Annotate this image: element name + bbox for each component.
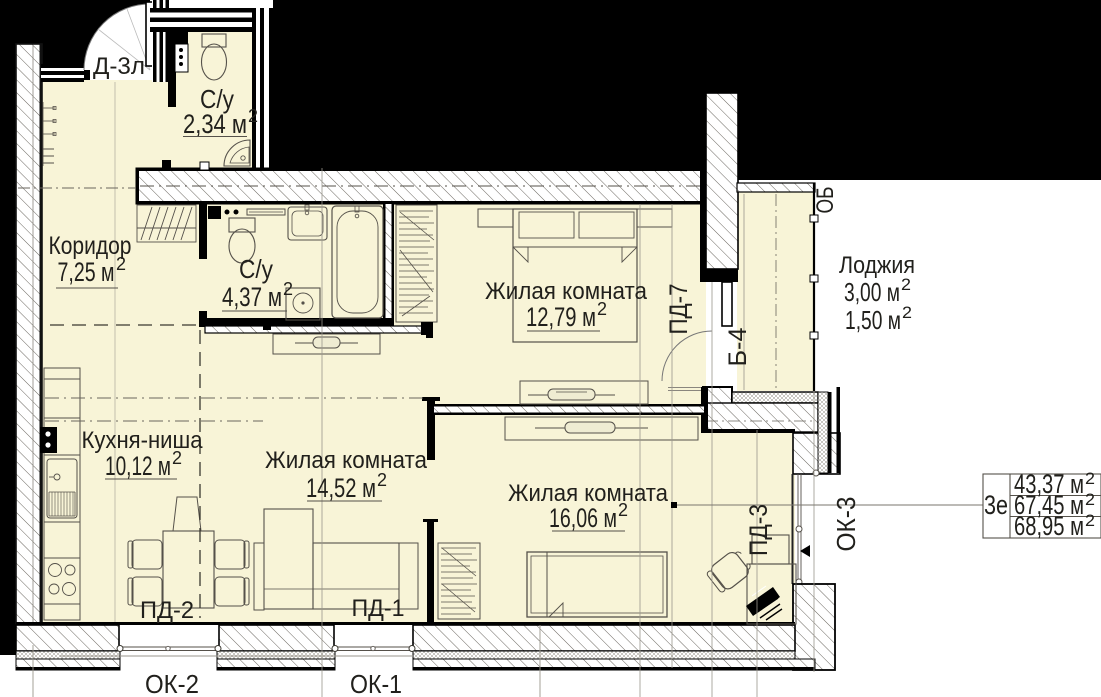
- svg-text:68,95 м: 68,95 м: [1014, 511, 1084, 541]
- svg-text:3,00 м: 3,00 м: [844, 277, 900, 307]
- svg-text:ПД-7: ПД-7: [665, 284, 693, 335]
- svg-text:2: 2: [1085, 511, 1095, 530]
- svg-text:7,25 м: 7,25 м: [58, 257, 115, 287]
- svg-text:ПД-3: ПД-3: [745, 504, 773, 556]
- svg-text:ОБ: ОБ: [812, 187, 839, 214]
- svg-text:ОК-1: ОК-1: [350, 669, 402, 697]
- svg-text:Д-3л: Д-3л: [93, 53, 145, 80]
- svg-text:2: 2: [283, 279, 293, 299]
- svg-text:ПД-2: ПД-2: [140, 597, 194, 624]
- svg-text:2: 2: [116, 254, 126, 274]
- svg-text:Кухня-ниша: Кухня-ниша: [82, 427, 204, 454]
- svg-text:Жилая комната: Жилая комната: [265, 447, 428, 474]
- svg-text:2: 2: [377, 470, 387, 490]
- svg-text:2: 2: [901, 275, 911, 294]
- svg-text:2,34 м: 2,34 м: [183, 109, 247, 139]
- svg-text:16,06 м: 16,06 м: [549, 503, 617, 533]
- svg-text:10,12 м: 10,12 м: [105, 451, 171, 481]
- svg-text:2: 2: [902, 303, 912, 322]
- svg-text:2: 2: [597, 299, 607, 319]
- svg-text:2: 2: [1085, 490, 1095, 509]
- svg-text:12,79 м: 12,79 м: [526, 302, 596, 332]
- svg-text:2: 2: [618, 500, 628, 520]
- svg-text:4,37 м: 4,37 м: [222, 282, 282, 312]
- svg-text:ПД-1: ПД-1: [352, 595, 405, 622]
- svg-text:2: 2: [1085, 469, 1095, 488]
- svg-text:С/у: С/у: [239, 254, 273, 284]
- svg-text:3е: 3е: [984, 490, 1008, 520]
- svg-text:Жилая комната: Жилая комната: [485, 278, 648, 305]
- svg-text:14,52 м: 14,52 м: [306, 473, 376, 503]
- svg-text:ОК-3: ОК-3: [831, 497, 861, 552]
- svg-text:ОК-2: ОК-2: [145, 669, 199, 697]
- svg-text:Б-4: Б-4: [724, 327, 752, 366]
- svg-text:1,50 м: 1,50 м: [845, 305, 901, 335]
- svg-text:2: 2: [248, 106, 258, 126]
- svg-text:2: 2: [172, 448, 182, 468]
